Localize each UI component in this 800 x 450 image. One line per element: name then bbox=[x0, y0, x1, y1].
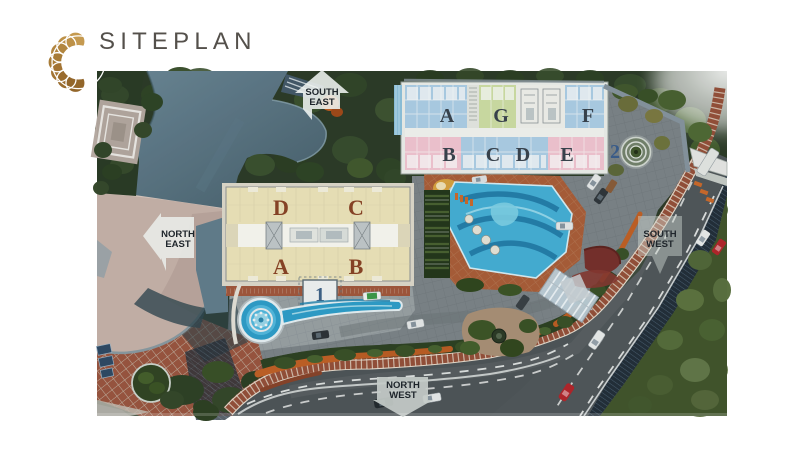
svg-text:EAST: EAST bbox=[309, 97, 335, 108]
svg-text:SITEPLAN: SITEPLAN bbox=[99, 28, 257, 55]
svg-text:WEST: WEST bbox=[389, 390, 417, 401]
svg-text:EAST: EAST bbox=[165, 239, 191, 250]
svg-text:WEST: WEST bbox=[646, 239, 674, 250]
